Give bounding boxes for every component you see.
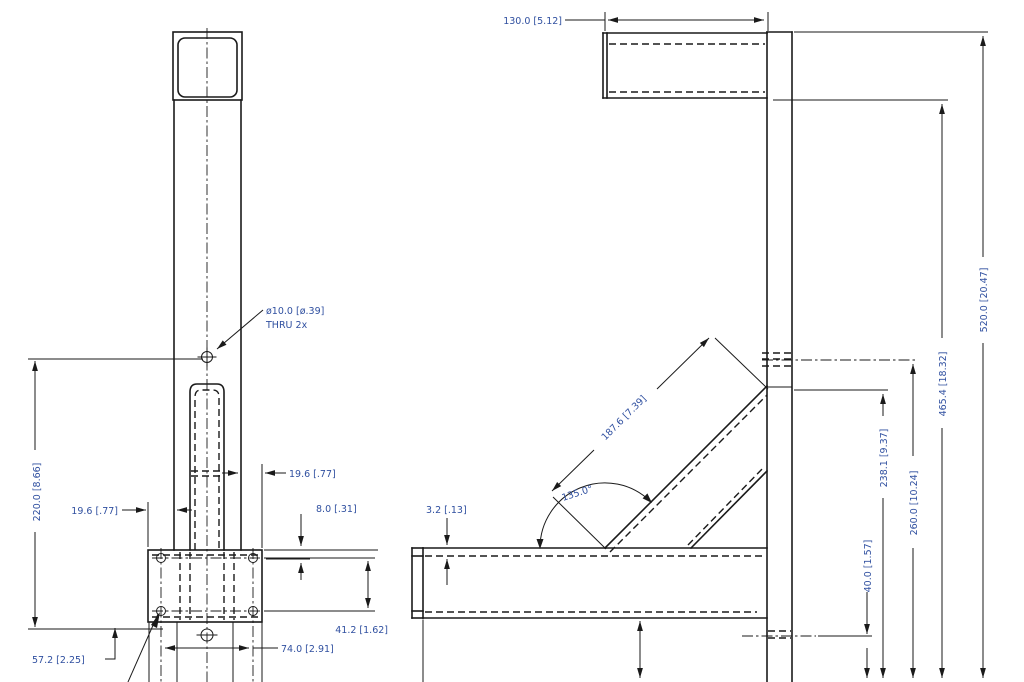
column-profile: [762, 32, 792, 682]
center-lines: [152, 28, 260, 682]
dim-height-40: 40.0 [1.57]: [742, 540, 874, 678]
right-view: 130.0 [5.12] 3.2 [.13] 187.6 [7.39] 135.…: [412, 12, 990, 682]
hole-callout-line2: THRU 2x: [265, 320, 308, 331]
dim-base-height: 57.2 [2.25]: [32, 628, 115, 666]
dim-height-520: 520.0 [20.47]: [794, 32, 990, 678]
dim-top-arm-length: 130.0 [5.12]: [503, 12, 768, 31]
dim-wall-thickness: 3.2 [.13]: [426, 505, 467, 585]
dim-label-40-0: 40.0 [1.57]: [863, 540, 874, 593]
dim-brace-angle: 135.0°: [537, 483, 653, 549]
dim-label-8-0: 8.0 [.31]: [316, 504, 357, 515]
dim-label-520-0: 520.0 [20.47]: [979, 268, 990, 333]
dim-hole-to-edge: 8.0 [.31]: [264, 504, 378, 580]
dim-hole-spacing-horizontal: 74.0 [2.91]: [165, 644, 334, 655]
dim-label-41-2: 41.2 [1.62]: [335, 625, 388, 636]
dim-height-238: 238.1 [9.37]: [794, 390, 890, 678]
dim-label-260-0: 260.0 [10.24]: [909, 471, 920, 536]
dim-hole-spacing-vertical: 41.2 [1.62]: [264, 558, 388, 636]
dim-label-19-6-left: 19.6 [.77]: [71, 506, 118, 517]
dim-label-130-0: 130.0 [5.12]: [503, 16, 562, 27]
hole-callout: ø10.0 [ø.39] THRU 2x: [217, 306, 324, 349]
dim-label-19-6-right: 19.6 [.77]: [289, 469, 336, 480]
hole-callout-line1: ø10.0 [ø.39]: [266, 306, 324, 317]
column-outline: [173, 32, 242, 550]
drawing-canvas: 220.0 [8.66] 19.6 [.77] 19.6 [.77] 8.0 […: [0, 0, 1024, 682]
dim-label-187-6: 187.6 [7.39]: [600, 394, 649, 443]
dim-label-220: 220.0 [8.66]: [32, 463, 43, 522]
dim-label-238-1: 238.1 [9.37]: [879, 429, 890, 488]
dim-label-74-0: 74.0 [2.91]: [281, 644, 334, 655]
left-view: 220.0 [8.66] 19.6 [.77] 19.6 [.77] 8.0 […: [28, 28, 388, 682]
dim-label-57-2: 57.2 [2.25]: [32, 655, 85, 666]
dim-label-465-4: 465.4 [18.32]: [938, 352, 949, 417]
dim-label-135: 135.0°: [561, 484, 595, 504]
top-arm: [603, 33, 767, 98]
dim-height-465: 465.4 [18.32]: [773, 100, 949, 678]
dim-label-3-2: 3.2 [.13]: [426, 505, 467, 516]
dim-height-220: 220.0 [8.66]: [28, 359, 203, 629]
dim-brace-length: 187.6 [7.39]: [552, 338, 768, 549]
bottom-arm: [412, 548, 767, 682]
